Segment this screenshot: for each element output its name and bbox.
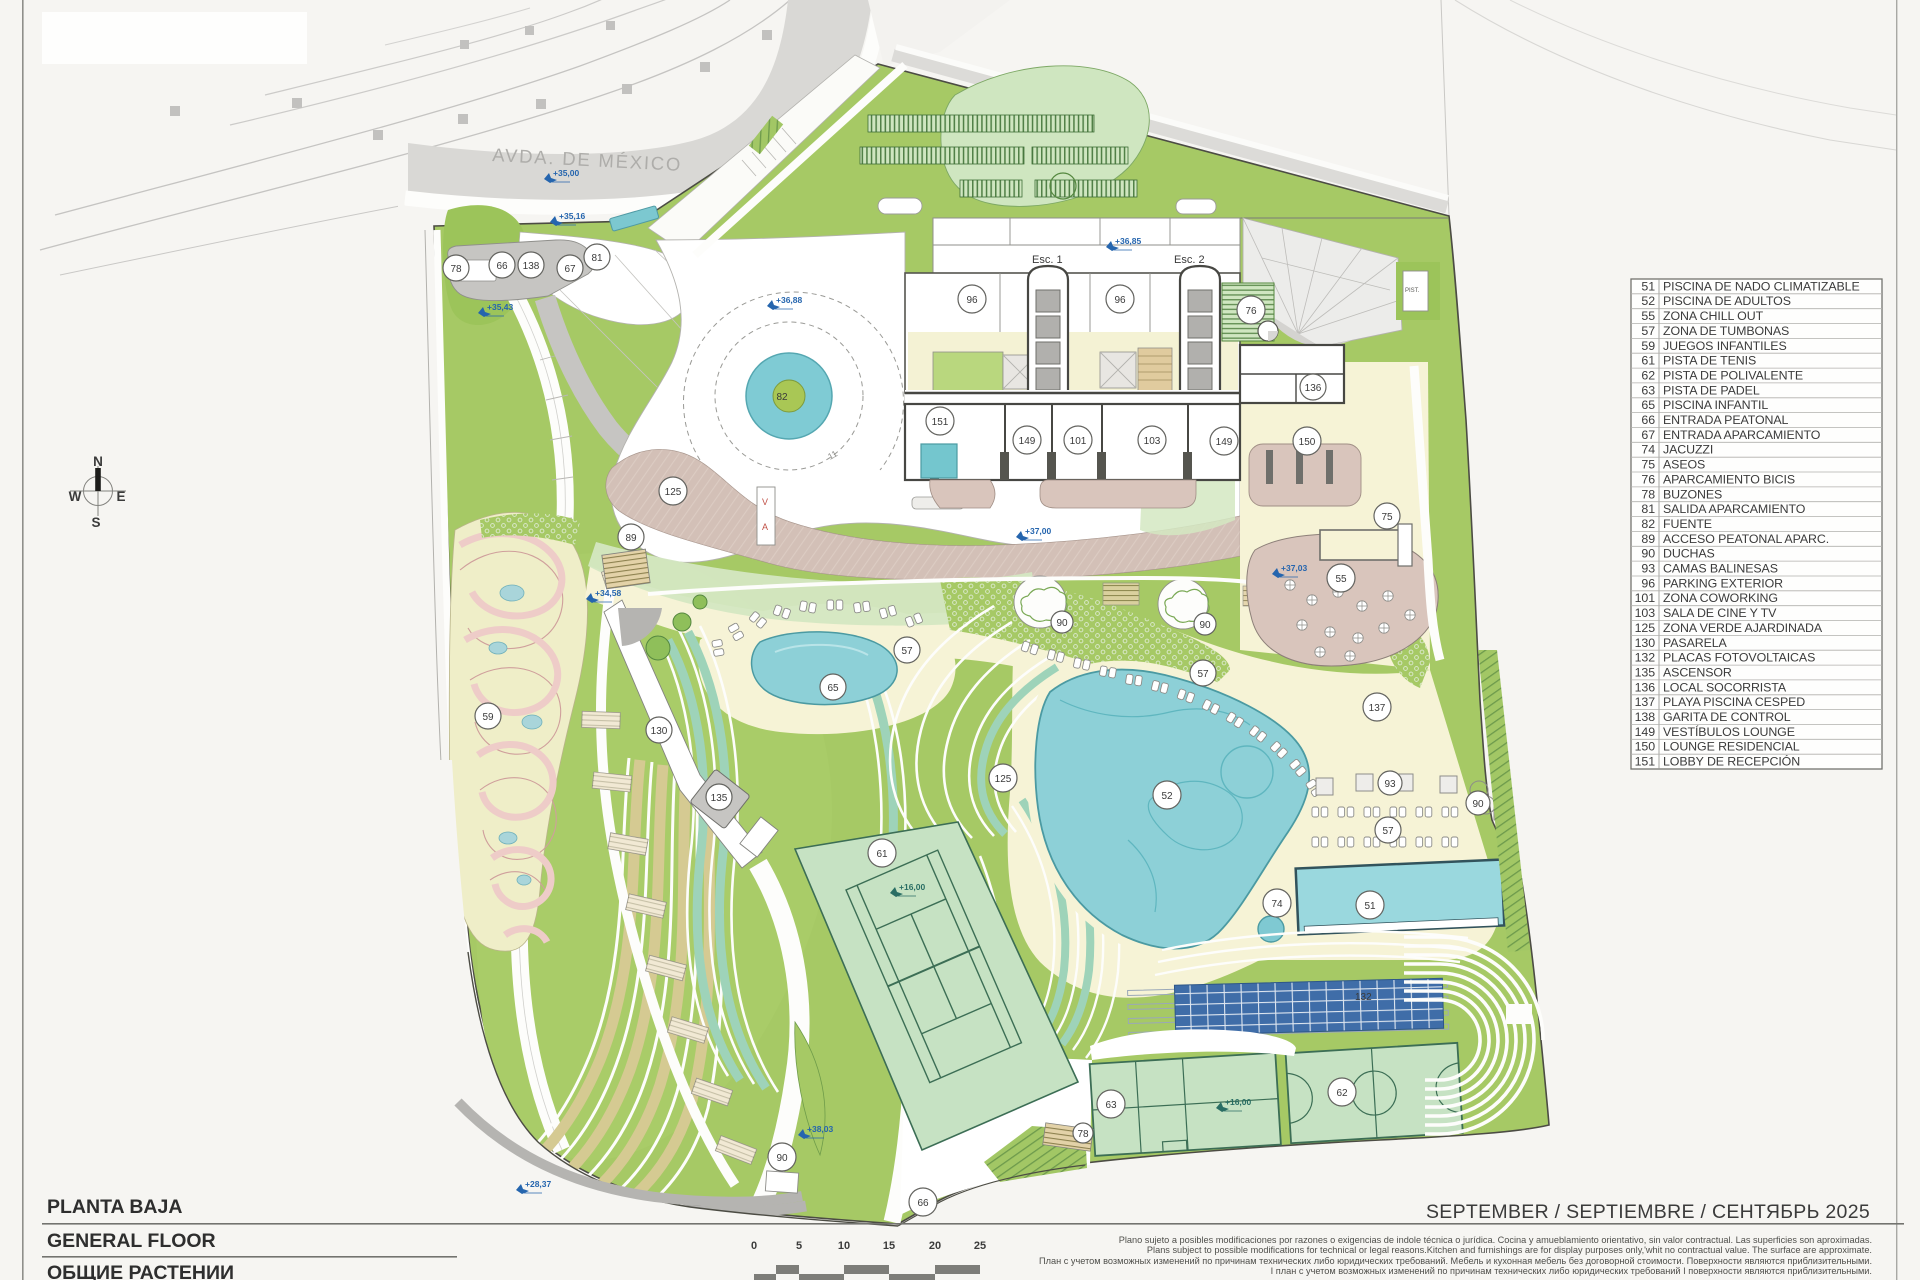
svg-text:52: 52 bbox=[1161, 791, 1173, 802]
svg-text:149: 149 bbox=[1019, 436, 1036, 447]
svg-text:132: 132 bbox=[1635, 651, 1656, 665]
svg-text:ASEOS: ASEOS bbox=[1663, 458, 1705, 472]
svg-text:JUEGOS INFANTILES: JUEGOS INFANTILES bbox=[1663, 339, 1787, 353]
svg-text:78: 78 bbox=[450, 264, 462, 275]
svg-text:57: 57 bbox=[1641, 324, 1655, 338]
svg-text:0: 0 bbox=[751, 1240, 757, 1252]
svg-text:125: 125 bbox=[995, 774, 1012, 785]
svg-text:81: 81 bbox=[591, 253, 603, 264]
svg-text:138: 138 bbox=[1635, 710, 1656, 724]
svg-text:138: 138 bbox=[523, 261, 540, 272]
svg-text:151: 151 bbox=[1635, 755, 1656, 769]
svg-text:PARKING EXTERIOR: PARKING EXTERIOR bbox=[1663, 576, 1783, 590]
svg-text:ZONA COWORKING: ZONA COWORKING bbox=[1663, 591, 1778, 605]
svg-text:Plano sujeto a posibles modifi: Plano sujeto a posibles modificaciones p… bbox=[1119, 1235, 1872, 1245]
svg-text:20: 20 bbox=[929, 1240, 941, 1252]
svg-text:125: 125 bbox=[1635, 621, 1656, 635]
svg-text:PISCINA DE ADULTOS: PISCINA DE ADULTOS bbox=[1663, 294, 1791, 308]
svg-text:Plans subject to possible modi: Plans subject to possible modifications … bbox=[1147, 1245, 1872, 1255]
svg-text:90: 90 bbox=[776, 1153, 788, 1164]
svg-text:136: 136 bbox=[1305, 383, 1322, 394]
svg-text:57: 57 bbox=[1382, 826, 1394, 837]
svg-text:66: 66 bbox=[1641, 413, 1655, 427]
svg-text:PLACAS FOTOVOLTAICAS: PLACAS FOTOVOLTAICAS bbox=[1663, 651, 1815, 665]
svg-text:LOBBY DE RECEPCIÓN: LOBBY DE RECEPCIÓN bbox=[1663, 754, 1800, 769]
svg-text:JACUZZI: JACUZZI bbox=[1663, 443, 1713, 457]
svg-text:130: 130 bbox=[651, 726, 668, 737]
svg-text:SEPTEMBER / SEPTIEMBRE / СЕНТЯ: SEPTEMBER / SEPTIEMBRE / СЕНТЯБРЬ 2025 bbox=[1426, 1201, 1870, 1223]
svg-text:63: 63 bbox=[1641, 383, 1655, 397]
svg-text:135: 135 bbox=[1635, 666, 1656, 680]
svg-text:ENTRADA APARCAMIENTO: ENTRADA APARCAMIENTO bbox=[1663, 428, 1821, 442]
svg-text:57: 57 bbox=[901, 646, 913, 657]
svg-text:137: 137 bbox=[1369, 703, 1386, 714]
svg-text:101: 101 bbox=[1635, 591, 1656, 605]
svg-text:67: 67 bbox=[564, 264, 576, 275]
svg-text:+35,16: +35,16 bbox=[559, 211, 586, 221]
svg-text:ASCENSOR: ASCENSOR bbox=[1663, 666, 1732, 680]
svg-text:78: 78 bbox=[1641, 487, 1655, 501]
svg-text:PIST.: PIST. bbox=[1405, 288, 1420, 294]
svg-text:66: 66 bbox=[496, 261, 508, 272]
svg-text:SALA DE CINE Y TV: SALA DE CINE Y TV bbox=[1663, 606, 1777, 620]
svg-text:52: 52 bbox=[1641, 294, 1655, 308]
svg-text:15: 15 bbox=[883, 1240, 895, 1252]
svg-text:76: 76 bbox=[1641, 472, 1655, 486]
svg-text:План с учетом возможных измене: План с учетом возможных изменений по при… bbox=[1039, 1256, 1872, 1266]
svg-text:96: 96 bbox=[1641, 576, 1655, 590]
svg-text:PISTA DE TENIS: PISTA DE TENIS bbox=[1663, 354, 1756, 368]
svg-text:Esc. 2: Esc. 2 bbox=[1174, 254, 1205, 266]
svg-text:55: 55 bbox=[1641, 309, 1655, 323]
svg-text:76: 76 bbox=[1245, 306, 1257, 317]
svg-text:103: 103 bbox=[1144, 436, 1161, 447]
svg-text:S: S bbox=[91, 515, 100, 530]
svg-text:ACCESO PEATONAL APARC.: ACCESO PEATONAL APARC. bbox=[1663, 532, 1829, 546]
svg-text:125: 125 bbox=[665, 487, 682, 498]
svg-text:51: 51 bbox=[1641, 279, 1655, 293]
svg-text:75: 75 bbox=[1641, 458, 1655, 472]
svg-text:61: 61 bbox=[1641, 354, 1655, 368]
svg-text:78: 78 bbox=[1077, 1129, 1089, 1140]
svg-text:75: 75 bbox=[1381, 512, 1393, 523]
svg-text:+38,03: +38,03 bbox=[807, 1124, 834, 1134]
svg-text:65: 65 bbox=[827, 683, 839, 694]
svg-text:+16,00: +16,00 bbox=[899, 882, 926, 892]
svg-text:+28,37: +28,37 bbox=[525, 1179, 552, 1189]
svg-text:150: 150 bbox=[1635, 740, 1656, 754]
svg-text:VESTÍBULOS LOUNGE: VESTÍBULOS LOUNGE bbox=[1663, 724, 1795, 739]
svg-text:25: 25 bbox=[974, 1240, 986, 1252]
svg-text:APARCAMIENTO BICIS: APARCAMIENTO BICIS bbox=[1663, 472, 1795, 486]
svg-text:101: 101 bbox=[1070, 436, 1087, 447]
svg-text:93: 93 bbox=[1641, 562, 1655, 576]
svg-text:+16,00: +16,00 bbox=[1225, 1097, 1252, 1107]
svg-text:+34,58: +34,58 bbox=[595, 588, 622, 598]
svg-text:74: 74 bbox=[1641, 443, 1655, 457]
svg-text:136: 136 bbox=[1635, 680, 1656, 694]
svg-text:10: 10 bbox=[838, 1240, 850, 1252]
svg-text:Esc. 1: Esc. 1 bbox=[1032, 254, 1063, 266]
svg-text:V: V bbox=[762, 497, 768, 507]
svg-text:96: 96 bbox=[1114, 295, 1126, 306]
svg-text:82: 82 bbox=[776, 392, 788, 403]
svg-text:+35,00: +35,00 bbox=[553, 168, 580, 178]
svg-text:74: 74 bbox=[1271, 899, 1283, 910]
svg-text:67: 67 bbox=[1641, 428, 1655, 442]
svg-text:89: 89 bbox=[625, 533, 637, 544]
svg-text:150: 150 bbox=[1299, 437, 1316, 448]
svg-text:90: 90 bbox=[1472, 799, 1484, 810]
svg-text:57: 57 bbox=[1197, 669, 1209, 680]
svg-text:63: 63 bbox=[1105, 1100, 1117, 1111]
svg-text:65: 65 bbox=[1641, 398, 1655, 412]
svg-text:+37,00: +37,00 bbox=[1025, 526, 1052, 536]
svg-text:BUZONES: BUZONES bbox=[1663, 487, 1722, 501]
svg-text:137: 137 bbox=[1635, 695, 1656, 709]
svg-text:+36,85: +36,85 bbox=[1115, 236, 1142, 246]
svg-text:51: 51 bbox=[1364, 901, 1376, 912]
svg-text:90: 90 bbox=[1199, 620, 1211, 631]
svg-text:LOCAL SOCORRISTA: LOCAL SOCORRISTA bbox=[1663, 680, 1787, 694]
svg-text:DUCHAS: DUCHAS bbox=[1663, 547, 1715, 561]
svg-text:GARITA DE CONTROL: GARITA DE CONTROL bbox=[1663, 710, 1791, 724]
svg-text:96: 96 bbox=[966, 295, 978, 306]
svg-text:ZONA DE TUMBONAS: ZONA DE TUMBONAS bbox=[1663, 324, 1789, 338]
svg-text:132: 132 bbox=[1355, 992, 1372, 1003]
svg-text:130: 130 bbox=[1635, 636, 1656, 650]
svg-text:151: 151 bbox=[932, 417, 949, 428]
svg-text:ОБЩИЕ РАСТЕНИИ: ОБЩИЕ РАСТЕНИИ bbox=[47, 1262, 234, 1280]
svg-text:149: 149 bbox=[1216, 437, 1233, 448]
svg-text:93: 93 bbox=[1384, 779, 1396, 790]
svg-text:N: N bbox=[93, 454, 103, 469]
svg-text:90: 90 bbox=[1056, 618, 1068, 629]
svg-text:E: E bbox=[116, 489, 125, 504]
svg-text:66: 66 bbox=[917, 1198, 929, 1209]
svg-text:PISCINA DE NADO CLIMATIZABLE: PISCINA DE NADO CLIMATIZABLE bbox=[1663, 279, 1860, 293]
svg-text:135: 135 bbox=[711, 793, 728, 804]
svg-text:+35,43: +35,43 bbox=[487, 302, 514, 312]
svg-text:+37,03: +37,03 bbox=[1281, 563, 1308, 573]
svg-text:ZONA CHILL OUT: ZONA CHILL OUT bbox=[1663, 309, 1764, 323]
svg-text:CAMAS BALINESAS: CAMAS BALINESAS bbox=[1663, 562, 1778, 576]
svg-text:55: 55 bbox=[1335, 574, 1347, 585]
svg-text:90: 90 bbox=[1641, 547, 1655, 561]
svg-text:62: 62 bbox=[1641, 369, 1655, 383]
svg-text:5: 5 bbox=[796, 1240, 802, 1252]
svg-text:89: 89 bbox=[1641, 532, 1655, 546]
svg-text:PLANTA BAJA: PLANTA BAJA bbox=[47, 1196, 182, 1218]
svg-text:PISTA DE PADEL: PISTA DE PADEL bbox=[1663, 383, 1760, 397]
svg-text:62: 62 bbox=[1336, 1088, 1348, 1099]
svg-text:PLAYA PISCINA CESPED: PLAYA PISCINA CESPED bbox=[1663, 695, 1805, 709]
svg-text:149: 149 bbox=[1635, 725, 1656, 739]
svg-text:W: W bbox=[69, 489, 82, 504]
svg-text:61: 61 bbox=[876, 849, 888, 860]
svg-text:FUENTE: FUENTE bbox=[1663, 517, 1712, 531]
svg-text:59: 59 bbox=[1641, 339, 1655, 353]
svg-text:+36,88: +36,88 bbox=[776, 295, 803, 305]
svg-text:ZONA VERDE AJARDINADA: ZONA VERDE AJARDINADA bbox=[1663, 621, 1823, 635]
svg-text:PASARELA: PASARELA bbox=[1663, 636, 1728, 650]
svg-text:GENERAL FLOOR: GENERAL FLOOR bbox=[47, 1230, 216, 1252]
svg-text:59: 59 bbox=[482, 712, 494, 723]
svg-text:81: 81 bbox=[1641, 502, 1655, 516]
svg-text:A: A bbox=[762, 522, 768, 532]
svg-text:SALIDA APARCAMIENTO: SALIDA APARCAMIENTO bbox=[1663, 502, 1806, 516]
svg-text:ENTRADA PEATONAL: ENTRADA PEATONAL bbox=[1663, 413, 1789, 427]
svg-text:LOUNGE RESIDENCIAL: LOUNGE RESIDENCIAL bbox=[1663, 740, 1800, 754]
svg-text:103: 103 bbox=[1635, 606, 1656, 620]
svg-text:I план с учетом возможных изме: I план с учетом возможных изменений по п… bbox=[1271, 1266, 1872, 1276]
svg-text:PISTA DE POLIVALENTE: PISTA DE POLIVALENTE bbox=[1663, 369, 1803, 383]
svg-text:82: 82 bbox=[1641, 517, 1655, 531]
svg-text:PISCINA INFANTIL: PISCINA INFANTIL bbox=[1663, 398, 1768, 412]
